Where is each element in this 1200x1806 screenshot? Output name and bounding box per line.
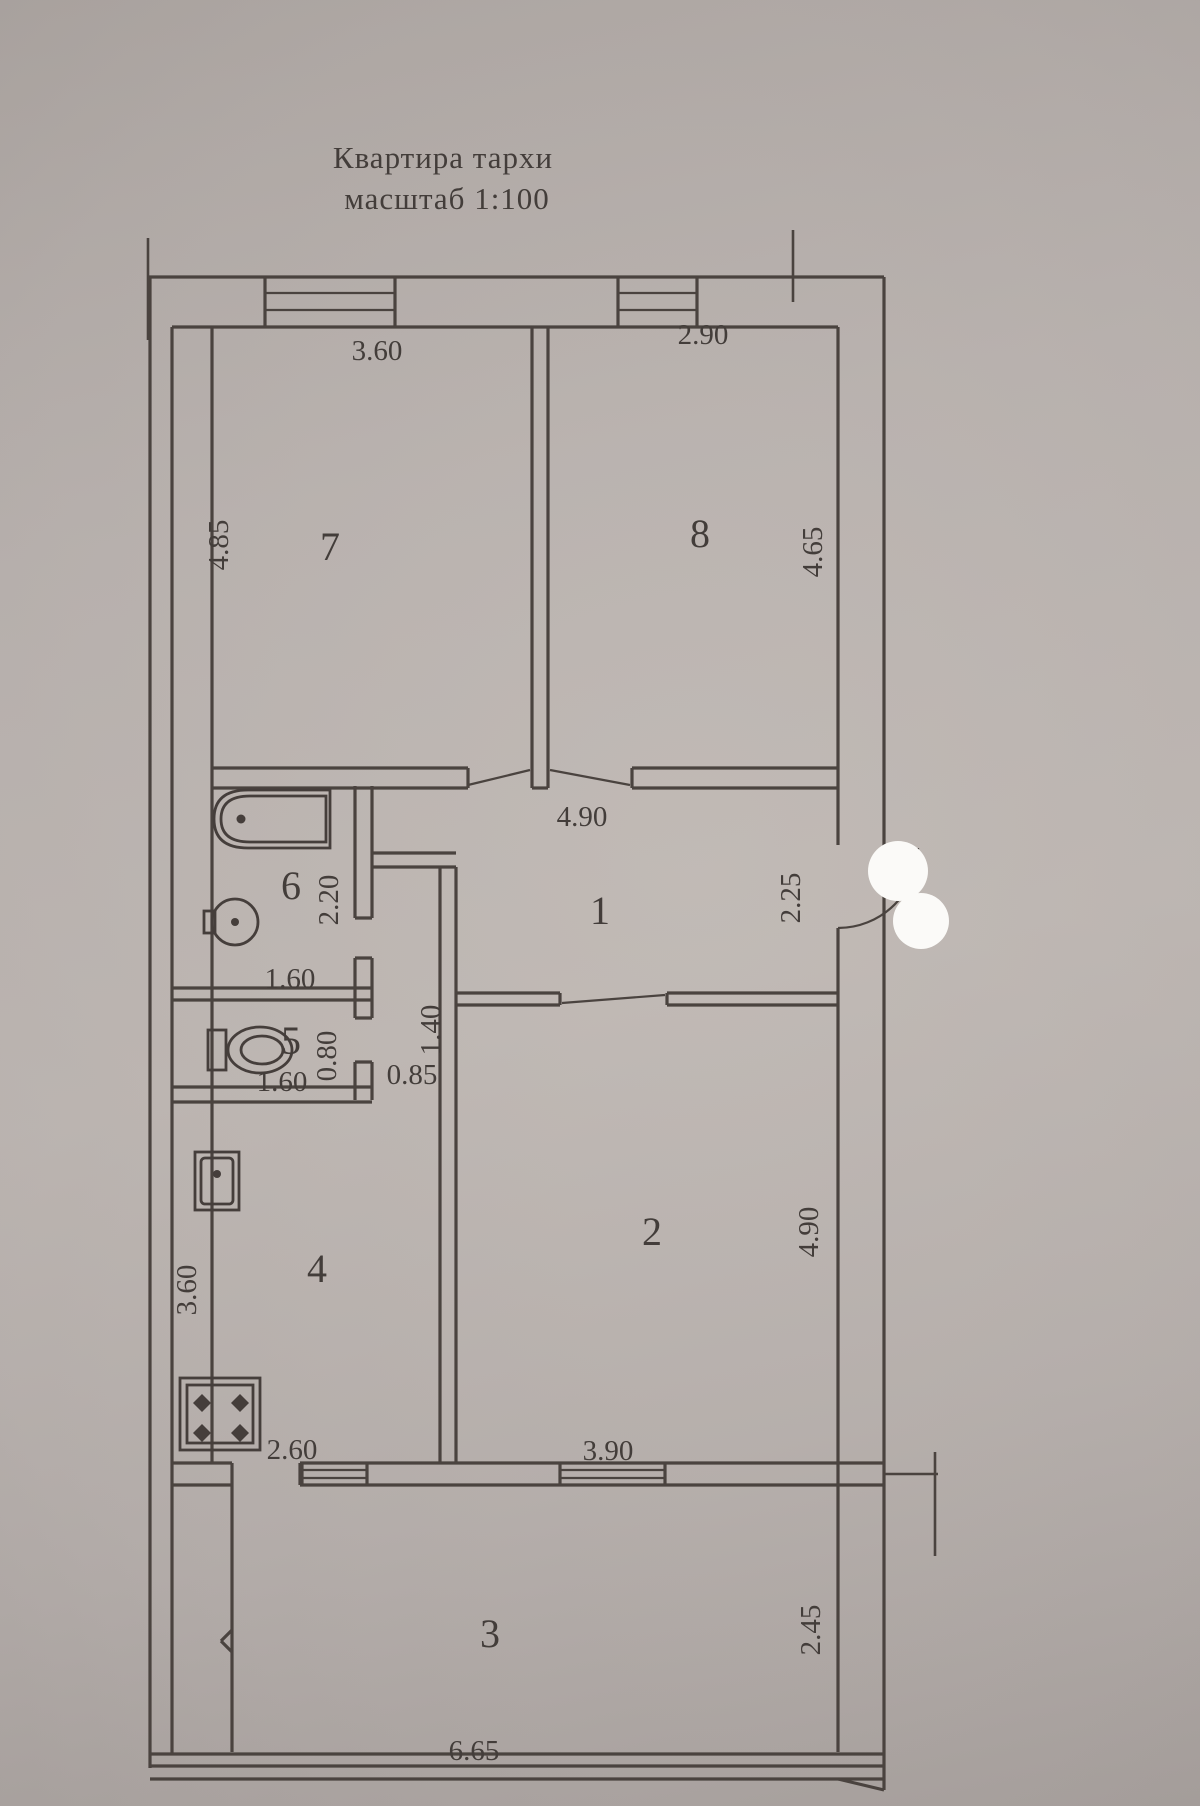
dim-hall-width: 4.90 <box>557 801 608 833</box>
door-leaf-room2 <box>562 995 665 1003</box>
dim-wc-height: 0.80 <box>311 1031 343 1082</box>
room-7-label: 7 <box>320 524 340 569</box>
dim-bath-height: 2.20 <box>313 875 345 926</box>
room-4-label: 4 <box>307 1246 327 1291</box>
door-leaf-room7 <box>468 770 530 785</box>
doors <box>468 770 918 1003</box>
dim-pantry-door: 0.85 <box>387 1059 438 1091</box>
dim-pantry-depth: 1.40 <box>415 1005 447 1056</box>
dim-kitchen-height: 3.60 <box>171 1265 203 1316</box>
dim-balcony-width: 6.65 <box>449 1735 500 1767</box>
room-3-label: 3 <box>480 1611 500 1656</box>
room-2-label: 2 <box>642 1209 662 1254</box>
plan-scale: масштаб 1:100 <box>344 181 550 216</box>
dim-hall-height: 2.25 <box>775 873 807 924</box>
dim-room8-width: 2.90 <box>678 319 729 351</box>
room-6-label: 6 <box>281 863 301 908</box>
dim-kitchen-width: 2.60 <box>267 1434 318 1466</box>
dim-room2-height: 4.90 <box>793 1207 825 1258</box>
plan-title: Квартира тархи <box>333 140 553 175</box>
dim-room2-width: 3.90 <box>583 1435 634 1467</box>
room-5-label: 5 <box>281 1018 301 1063</box>
outer-walls <box>148 277 884 1790</box>
balcony-walls <box>150 1485 884 1790</box>
dim-room7-height: 4.85 <box>203 520 235 571</box>
dim-room7-width: 3.60 <box>352 335 403 367</box>
labels: Квартира тархи масштаб 1:100 7 8 1 6 5 4… <box>171 140 829 1767</box>
redaction-circle <box>868 841 928 901</box>
redaction-circles <box>868 841 949 949</box>
dim-balcony-height: 2.45 <box>795 1605 827 1656</box>
dim-wc-width: 1.60 <box>257 1066 308 1098</box>
room-8-label: 8 <box>690 511 710 556</box>
stove-icon <box>180 1378 260 1450</box>
kitchen-sink-icon <box>195 1152 239 1210</box>
dimension-ticks <box>148 230 938 1556</box>
dim-bath-width: 1.60 <box>265 963 316 995</box>
bathtub-icon <box>214 790 330 848</box>
window-kitchen <box>302 1463 367 1485</box>
room-1-label: 1 <box>590 888 610 933</box>
redaction-circle <box>893 893 949 949</box>
scanned-page: { "title": { "line1": "Квартира тархи", … <box>0 0 1200 1806</box>
floor-plan-svg: Квартира тархи масштаб 1:100 7 8 1 6 5 4… <box>0 0 1200 1806</box>
dim-room8-height: 4.65 <box>797 527 829 578</box>
window-room7 <box>265 277 395 327</box>
fixtures <box>180 790 330 1450</box>
door-leaf-room8 <box>550 770 630 785</box>
